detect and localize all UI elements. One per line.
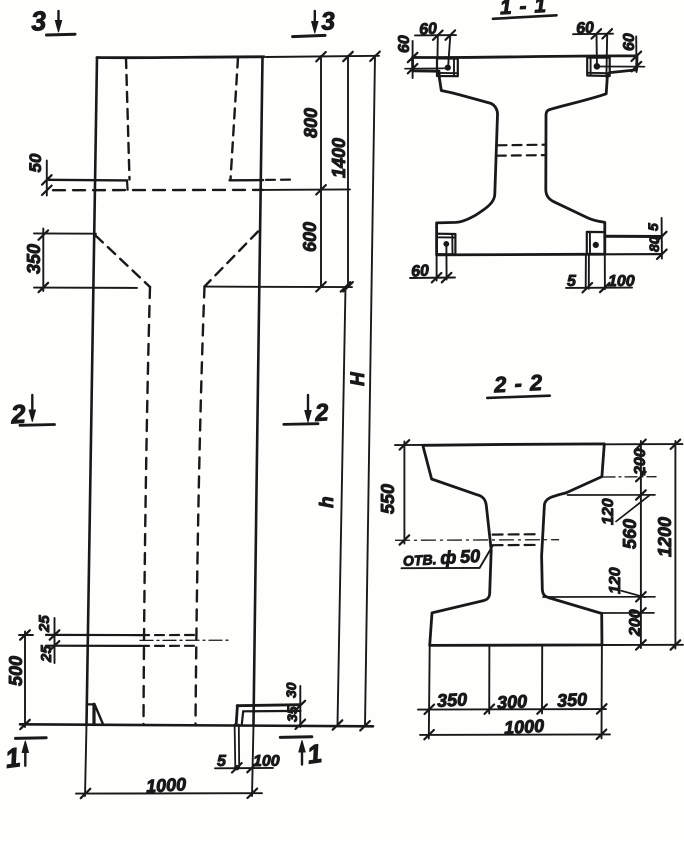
- svg-text:3: 3: [30, 6, 47, 37]
- svg-text:2 - 2: 2 - 2: [492, 370, 543, 398]
- svg-text:500: 500: [6, 656, 26, 686]
- svg-text:1: 1: [305, 738, 324, 770]
- svg-text:1: 1: [3, 742, 22, 774]
- svg-text:600: 600: [300, 222, 320, 252]
- svg-text:80: 80: [646, 236, 662, 252]
- svg-text:25: 25: [36, 615, 53, 633]
- svg-text:100: 100: [608, 273, 635, 290]
- svg-text:1000: 1000: [504, 716, 545, 738]
- svg-text:5: 5: [645, 223, 661, 231]
- svg-text:200: 200: [632, 448, 649, 476]
- svg-text:5: 5: [567, 273, 577, 290]
- svg-text:5: 5: [217, 753, 227, 770]
- svg-text:3: 3: [320, 7, 336, 36]
- svg-text:2: 2: [313, 399, 330, 427]
- svg-text:1000: 1000: [146, 774, 187, 796]
- svg-text:ОТВ. ф 50: ОТВ. ф 50: [402, 546, 480, 570]
- svg-text:50: 50: [26, 153, 45, 172]
- svg-text:350: 350: [24, 244, 44, 274]
- svg-text:h: h: [317, 496, 338, 508]
- svg-text:1400: 1400: [329, 138, 349, 178]
- svg-text:H: H: [348, 371, 369, 386]
- svg-text:350: 350: [557, 689, 588, 711]
- svg-text:350: 350: [437, 689, 468, 711]
- svg-text:25: 25: [38, 645, 55, 663]
- svg-text:35: 35: [284, 706, 300, 722]
- svg-text:1200: 1200: [655, 517, 675, 557]
- svg-text:560: 560: [620, 519, 640, 549]
- svg-text:30: 30: [283, 682, 299, 698]
- svg-text:800: 800: [301, 108, 321, 138]
- svg-text:120: 120: [600, 498, 617, 525]
- svg-text:60: 60: [396, 35, 413, 53]
- svg-text:100: 100: [253, 753, 280, 770]
- svg-text:550: 550: [378, 484, 398, 514]
- svg-text:300: 300: [497, 691, 528, 713]
